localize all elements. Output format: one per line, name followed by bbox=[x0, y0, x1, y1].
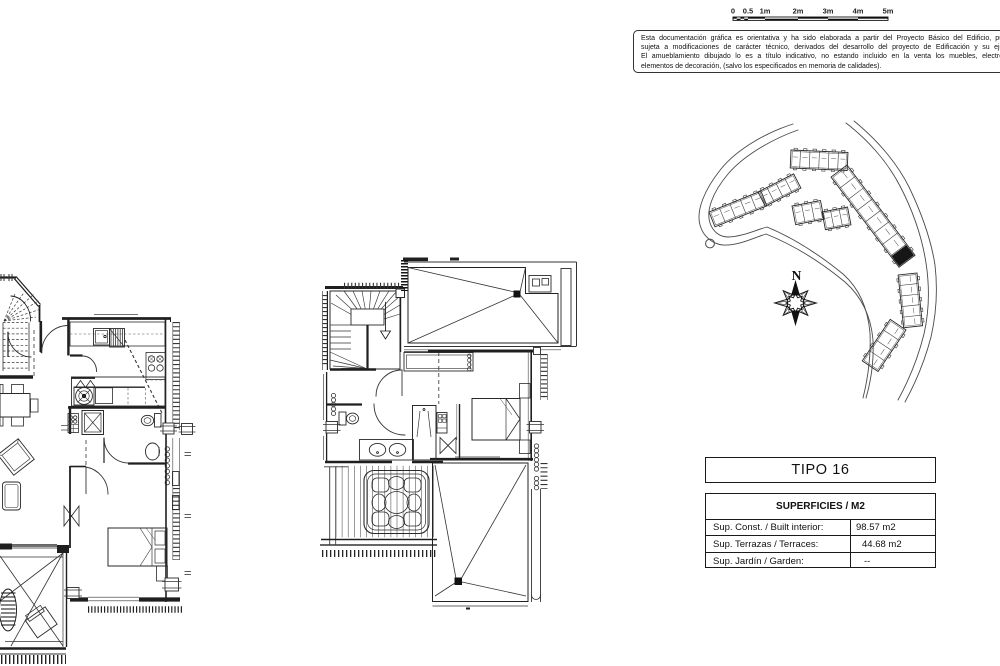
svg-text:N: N bbox=[792, 268, 802, 283]
svg-text:1m: 1m bbox=[760, 7, 771, 16]
svg-text:2m: 2m bbox=[793, 7, 804, 16]
svg-text:5m: 5m bbox=[883, 7, 894, 16]
svg-text:3m: 3m bbox=[823, 7, 834, 16]
svg-text:4m: 4m bbox=[853, 7, 864, 16]
svg-text:0: 0 bbox=[731, 7, 735, 16]
svg-text:0.5: 0.5 bbox=[743, 7, 753, 16]
